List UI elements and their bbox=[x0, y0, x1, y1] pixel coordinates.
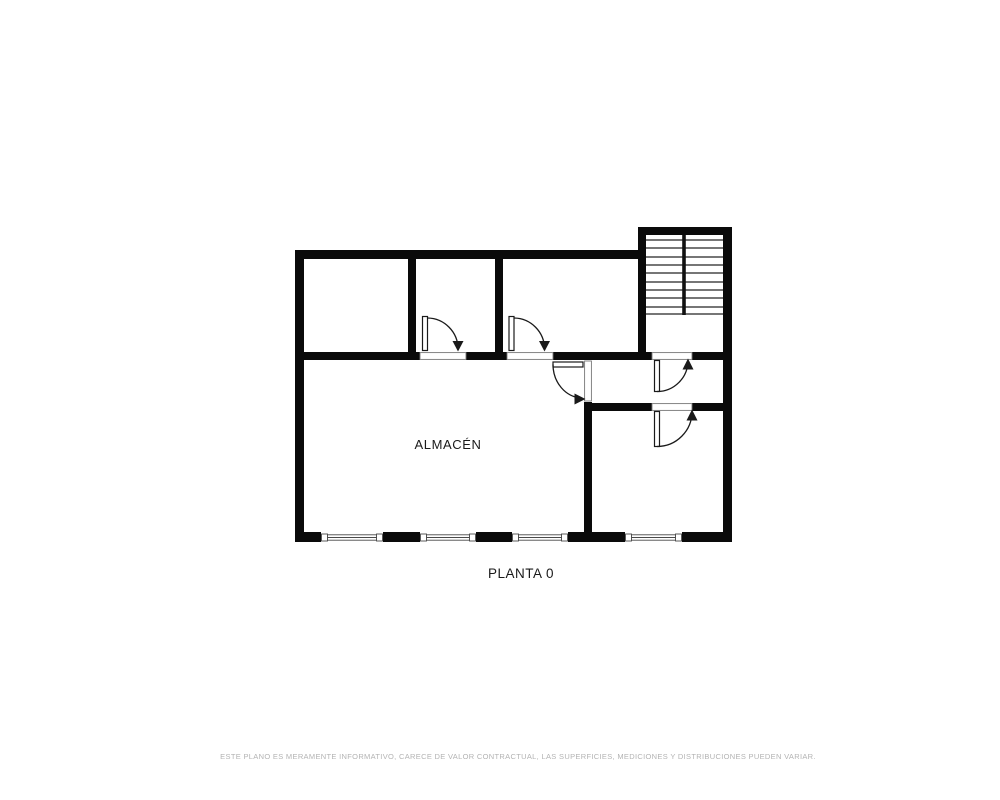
door-middle-room bbox=[420, 317, 466, 360]
floor-title: PLANTA 0 bbox=[421, 566, 621, 581]
floorplan-page: ALMACÉN PLANTA 0 ESTE PLANO ES MERAMENTE… bbox=[0, 0, 1000, 800]
wall-stair-left bbox=[638, 227, 646, 360]
wall-right-rooms-seg1 bbox=[584, 403, 652, 411]
wall-mid-seg4 bbox=[692, 352, 732, 360]
staircase bbox=[646, 235, 723, 315]
wall-almacen-right bbox=[584, 402, 592, 532]
floorplan-drawing bbox=[290, 218, 740, 550]
room-label-almacen: ALMACÉN bbox=[348, 437, 548, 452]
window bbox=[512, 532, 568, 542]
door-landing bbox=[652, 353, 694, 392]
wall-toprow-div1 bbox=[408, 259, 416, 352]
wall-mid-seg2 bbox=[466, 352, 507, 360]
outer-walls bbox=[295, 227, 732, 542]
wall-toprow-div2 bbox=[495, 259, 503, 352]
window bbox=[321, 532, 383, 542]
window bbox=[625, 532, 682, 542]
interior-walls bbox=[295, 259, 732, 532]
wall-right-rooms-seg2 bbox=[692, 403, 723, 411]
wall-right bbox=[723, 227, 732, 542]
wall-mid-seg3 bbox=[553, 352, 652, 360]
door-almacen bbox=[553, 361, 591, 405]
wall-top-main bbox=[295, 250, 646, 259]
wall-mid-seg1 bbox=[295, 352, 420, 360]
wall-stair-top bbox=[638, 227, 732, 235]
door-lower-right bbox=[652, 404, 698, 447]
window bbox=[420, 532, 476, 542]
door-right-room bbox=[507, 317, 553, 360]
disclaimer-text: ESTE PLANO ES MERAMENTE INFORMATIVO, CAR… bbox=[118, 752, 918, 761]
wall-left bbox=[295, 250, 304, 542]
